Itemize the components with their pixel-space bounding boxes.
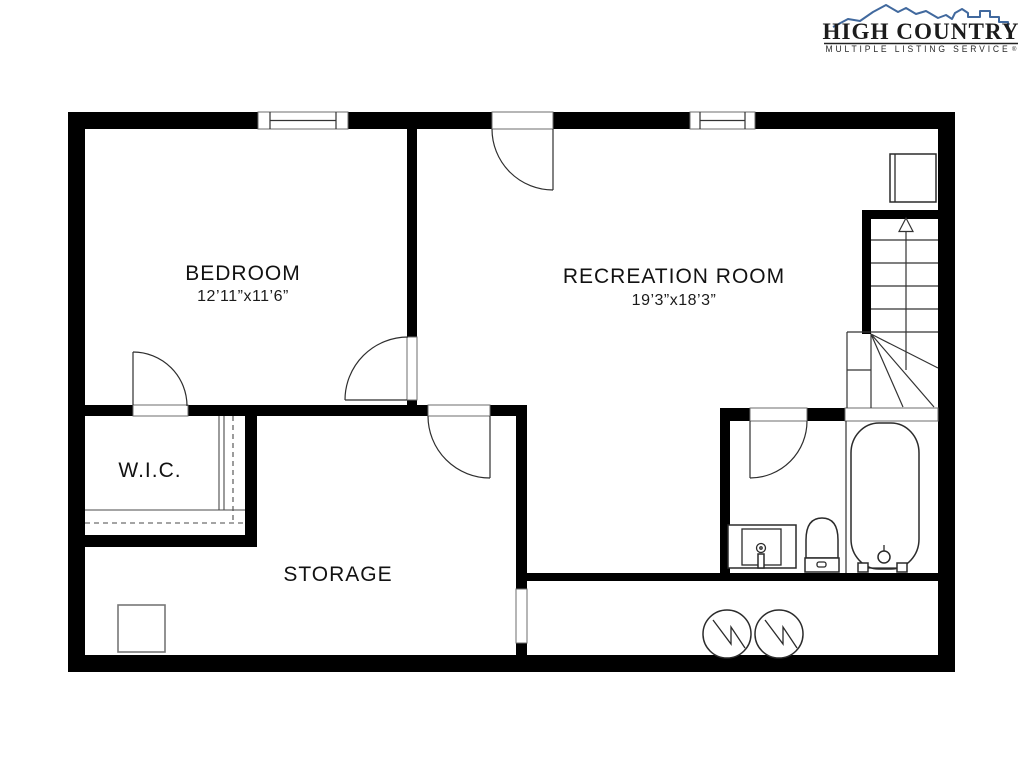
tub-rim: [851, 423, 919, 569]
wall-segment: [407, 129, 417, 337]
logo-title: HIGH COUNTRY: [823, 19, 1020, 44]
door-opening: [407, 337, 417, 400]
door-opening: [492, 112, 553, 129]
appliance-box: [890, 154, 936, 202]
water-heater-icon: [755, 610, 803, 658]
floor-plan-drawing: BEDROOM 12’11”x11’6” RECREATION ROOM 19’…: [0, 0, 1024, 768]
wall-segment: [807, 408, 845, 421]
vanity-sink-icon: [728, 525, 796, 568]
door-swing-arc: [133, 352, 187, 406]
wall-segment: [85, 405, 133, 416]
window-icon: [690, 112, 755, 129]
wall-segment: [68, 655, 955, 672]
recreation-room-dimensions: 19’3”x18’3”: [632, 292, 717, 309]
wall-segment: [862, 210, 955, 219]
wall-segment: [188, 405, 428, 416]
arrow-head: [899, 218, 913, 232]
wall-segment: [68, 535, 257, 547]
wall-segment: [516, 573, 938, 581]
wall-segment: [516, 408, 527, 589]
appliance-icon: [890, 154, 936, 202]
interior-walls: [68, 129, 955, 655]
wall-segment: [245, 405, 257, 547]
tub-faucet-handle: [897, 563, 907, 572]
cased-opening: [516, 589, 527, 643]
staircase: [847, 218, 938, 408]
window-icon: [258, 112, 348, 129]
recreation-room-label: RECREATION ROOM: [563, 265, 785, 288]
bedroom-label: BEDROOM: [185, 262, 301, 285]
door-icon: [345, 337, 417, 400]
water-heater-circle: [703, 610, 751, 658]
tub-faucet-handle: [858, 563, 868, 572]
wall-segment: [68, 112, 85, 672]
sink-faucet-handle: [758, 554, 764, 568]
exterior-walls: [68, 112, 955, 672]
wic-label: W.I.C.: [118, 459, 181, 482]
bathroom: [728, 421, 919, 573]
water-heater-circle: [755, 610, 803, 658]
wall-segment: [730, 408, 750, 421]
door-swing-arc: [750, 421, 807, 478]
toilet-tank: [805, 558, 839, 572]
tub-drain: [878, 551, 890, 563]
stairs-up-arrow-icon: [899, 218, 913, 370]
door-opening: [133, 405, 188, 416]
door-swing-arc: [492, 129, 553, 190]
mechanical-area: [703, 610, 803, 658]
logo-subtitle: MULTIPLE LISTING SERVICE: [826, 44, 1011, 54]
toilet-bowl: [806, 518, 838, 558]
door-opening: [750, 408, 807, 421]
door-swing-arc: [428, 416, 490, 478]
floor-plan-page: BEDROOM 12’11”x11’6” RECREATION ROOM 19’…: [0, 0, 1024, 768]
cased-opening: [845, 408, 938, 421]
door-icon: [492, 112, 553, 190]
door-swing-arc: [345, 337, 408, 400]
bedroom-dimensions: 12’11”x11’6”: [197, 288, 289, 305]
bathtub-icon: [851, 423, 919, 572]
high-country-mls-logo: HIGH COUNTRY MULTIPLE LISTING SERVICE ®: [823, 5, 1020, 54]
toilet-icon: [805, 518, 839, 572]
door-icon: [133, 352, 188, 416]
stair-treads: [847, 240, 938, 332]
door-icon: [750, 408, 807, 478]
wall-segment: [938, 112, 955, 672]
wall-segment: [516, 643, 527, 655]
door-opening: [428, 405, 490, 416]
logo-trademark: ®: [1012, 46, 1017, 53]
storage-label: STORAGE: [283, 563, 392, 586]
utility-square: [118, 605, 165, 652]
wall-segment: [862, 210, 871, 334]
stair-winder-treads: [847, 332, 938, 408]
water-heater-icon: [703, 610, 751, 658]
door-icon: [428, 405, 490, 478]
